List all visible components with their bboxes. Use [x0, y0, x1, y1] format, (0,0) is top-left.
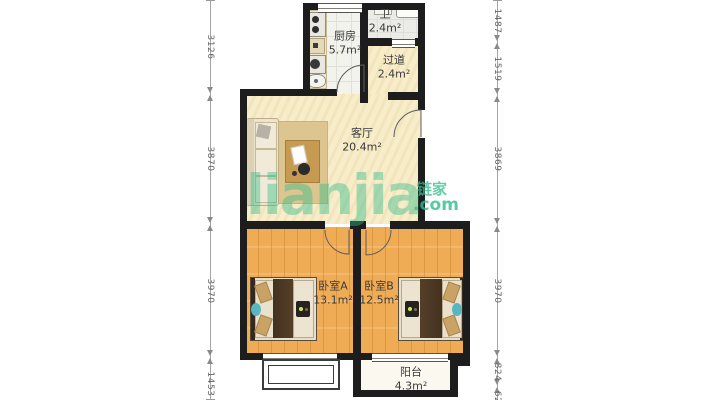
dimension-arrow — [494, 88, 500, 94]
entry-door-arc — [394, 110, 421, 137]
dimension-arrow — [494, 35, 500, 41]
dim-label: 3970 — [205, 279, 215, 304]
dimension-arrow — [494, 226, 500, 232]
room-area: 2.4m² — [369, 22, 402, 36]
room-label-livingroom: 客厅 20.4m² — [342, 127, 382, 156]
dim-label: 62 — [492, 391, 502, 400]
dimension-arrow — [207, 225, 213, 231]
dimension-arrow — [494, 96, 500, 102]
dimension-tick — [206, 0, 215, 1]
dimension-line-left — [210, 0, 211, 400]
room-area: 4.3m² — [395, 380, 428, 394]
room-label-balcony: 阳台 4.3m² — [395, 366, 428, 395]
dim-label: 824 — [492, 363, 502, 382]
dimension-arrow — [494, 218, 500, 224]
room-name: 厨房 — [329, 30, 362, 44]
room-area: 13.1m² — [313, 294, 353, 308]
room-area: 5.7m² — [329, 44, 362, 58]
door-arcs-svg — [0, 0, 710, 400]
dimension-tick — [493, 0, 502, 1]
room-name: 卫 — [369, 8, 402, 22]
room-name: 客厅 — [342, 127, 382, 141]
bedroomB-door-arc — [366, 230, 391, 255]
dimension-arrow — [207, 217, 213, 223]
dim-label: 3869 — [492, 147, 502, 172]
room-name: 阳台 — [395, 366, 428, 380]
room-area: 20.4m² — [342, 141, 382, 155]
dim-label: 1453 — [205, 372, 215, 397]
dim-label: 3126 — [205, 35, 215, 60]
floorplan-canvas: 厨房 5.7m² 卫 2.4m² 过道 2.4m² 客厅 20.4m² 卧室A … — [0, 0, 710, 400]
bedroomA-door-arc — [325, 230, 349, 254]
room-label-bedroomB: 卧室B 12.5m² — [359, 280, 399, 309]
kitchen-door-arc — [337, 65, 364, 92]
room-label-bathroom: 卫 2.4m² — [369, 8, 402, 37]
room-label-hallway: 过道 2.4m² — [378, 54, 411, 83]
room-name: 卧室A — [313, 280, 353, 294]
dimension-arrow — [207, 95, 213, 101]
dimension-arrow — [207, 358, 213, 364]
dim-label: 1519 — [492, 57, 502, 82]
room-label-bedroomA: 卧室A 13.1m² — [313, 280, 353, 309]
room-area: 12.5m² — [359, 294, 399, 308]
room-name: 卧室B — [359, 280, 399, 294]
dimension-arrow — [207, 87, 213, 93]
dimension-arrow — [207, 350, 213, 356]
dimension-arrow — [494, 350, 500, 356]
dimension-arrow — [494, 43, 500, 49]
room-area: 2.4m² — [378, 68, 411, 82]
dim-label: 3970 — [492, 279, 502, 304]
room-name: 过道 — [378, 54, 411, 68]
dim-label: 1487 — [492, 9, 502, 34]
dim-label: 3870 — [205, 147, 215, 172]
room-label-kitchen: 厨房 5.7m² — [329, 30, 362, 59]
